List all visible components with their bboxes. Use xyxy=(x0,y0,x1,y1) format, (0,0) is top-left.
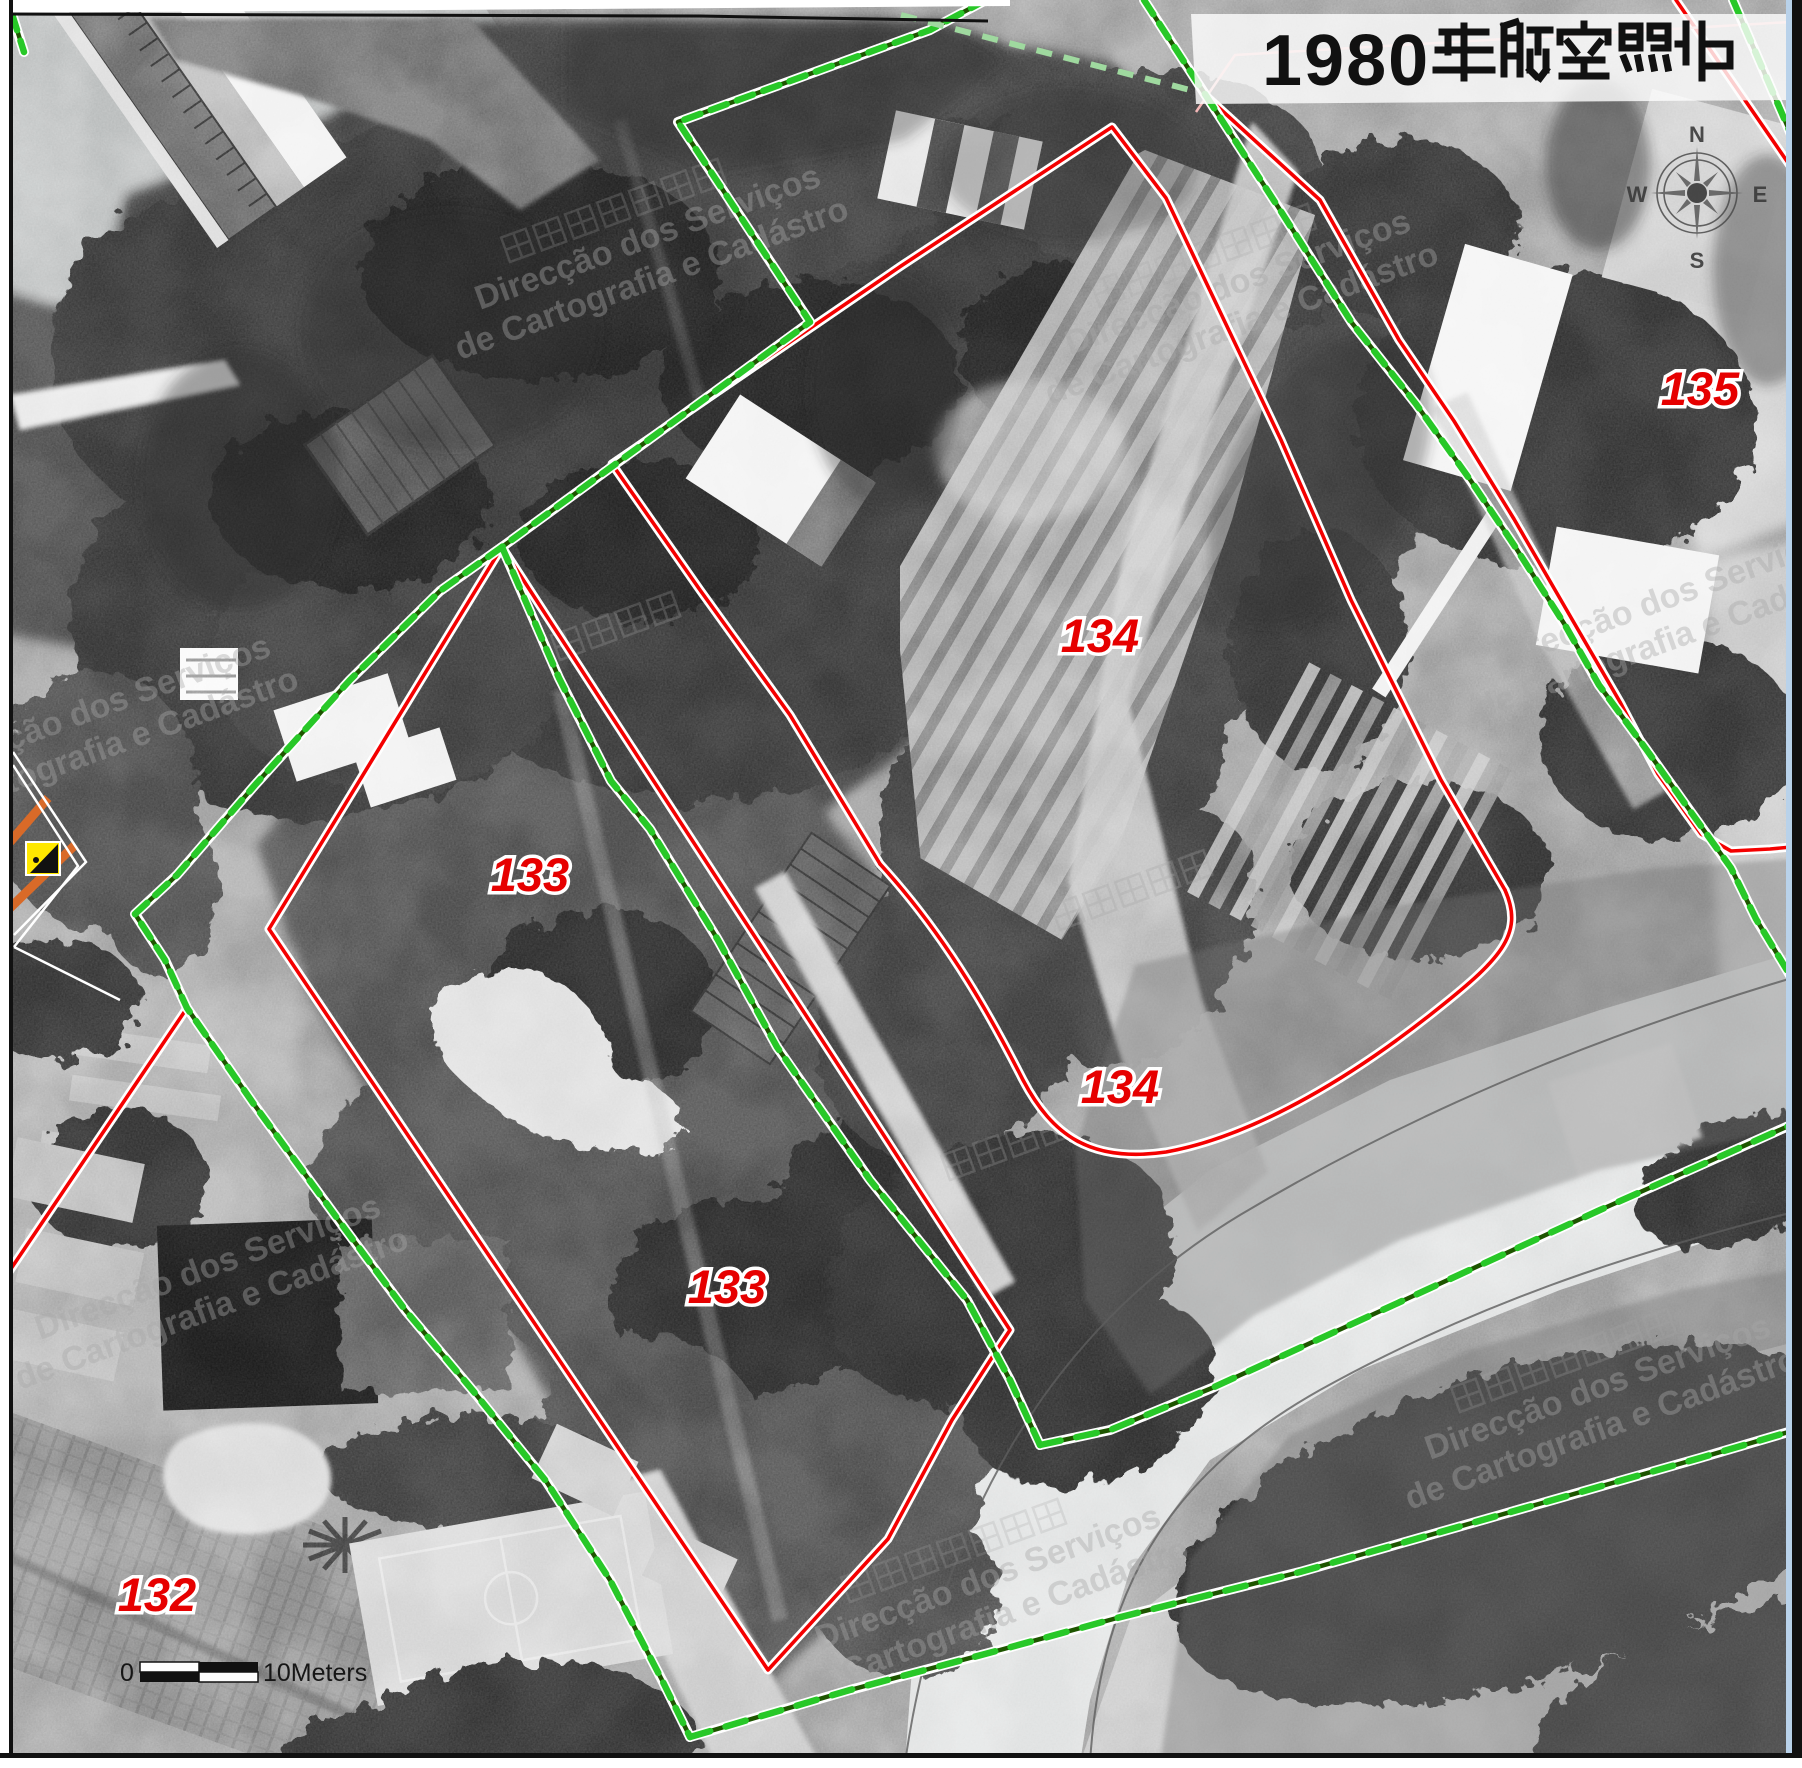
svg-text:S: S xyxy=(1690,248,1705,273)
svg-text:135: 135 xyxy=(1661,362,1740,415)
svg-text:134: 134 xyxy=(1081,1060,1159,1113)
svg-text:10Meters: 10Meters xyxy=(263,1659,367,1687)
svg-text:133: 133 xyxy=(491,848,569,901)
svg-text:E: E xyxy=(1753,182,1768,207)
svg-text:1980: 1980 xyxy=(1262,21,1430,101)
svg-text:132: 132 xyxy=(118,1568,196,1621)
svg-text:N: N xyxy=(1689,122,1705,147)
svg-text:0: 0 xyxy=(120,1659,134,1687)
svg-text:W: W xyxy=(1627,182,1648,207)
svg-text:134: 134 xyxy=(1061,609,1139,662)
svg-text:133: 133 xyxy=(688,1260,766,1313)
